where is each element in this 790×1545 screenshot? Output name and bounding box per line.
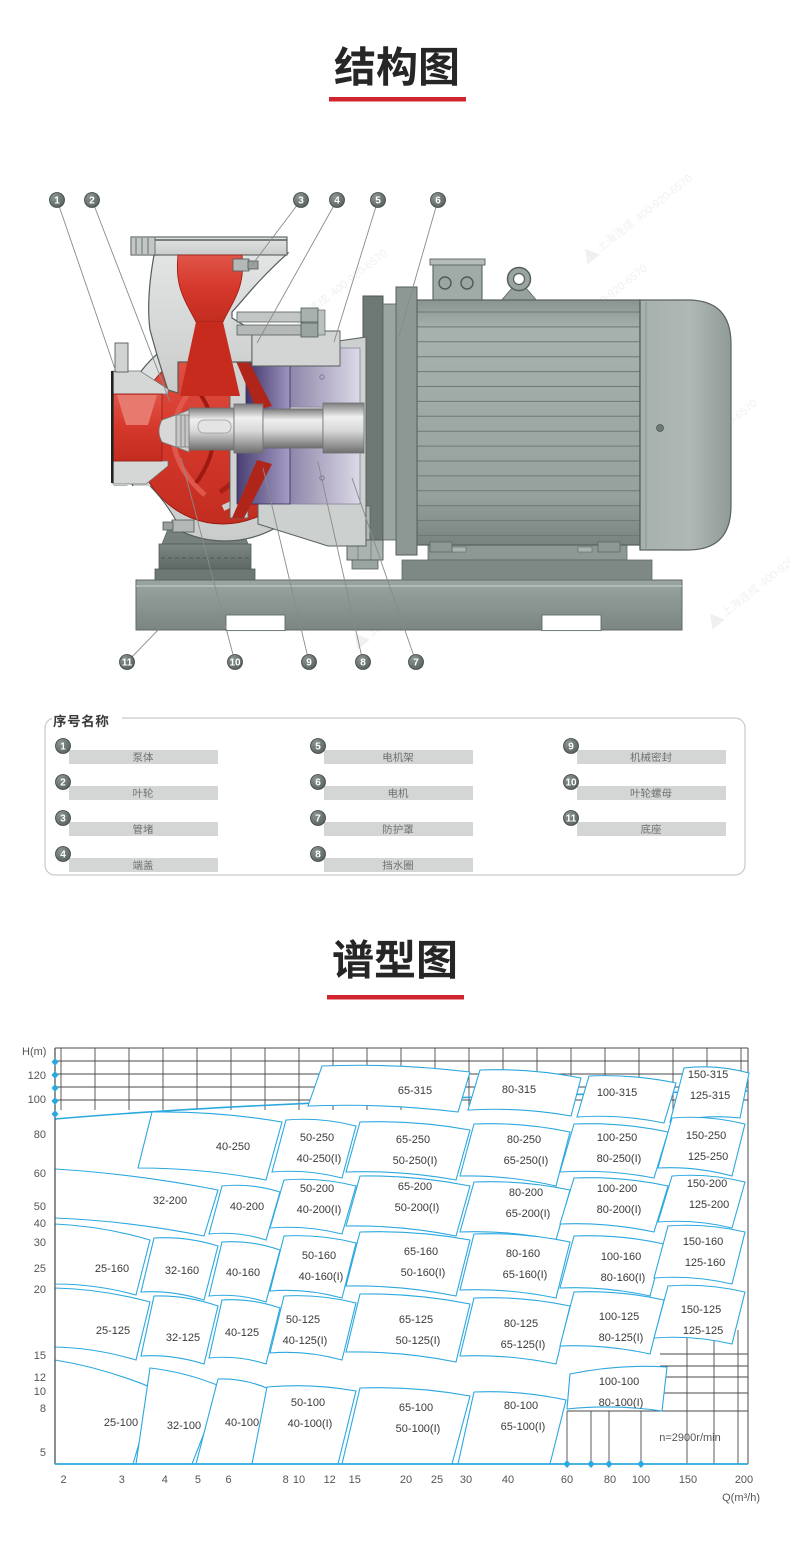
svg-text:6: 6: [315, 778, 321, 789]
svg-text:40-125(I): 40-125(I): [283, 1335, 328, 1347]
svg-text:32-100: 32-100: [167, 1420, 201, 1432]
svg-text:9: 9: [568, 742, 574, 753]
svg-text:H(m): H(m): [22, 1046, 46, 1058]
svg-text:50-200(I): 50-200(I): [395, 1202, 440, 1214]
svg-text:40-100: 40-100: [225, 1417, 259, 1429]
svg-text:40-200(I): 40-200(I): [297, 1204, 342, 1216]
svg-text:32-200: 32-200: [153, 1195, 187, 1207]
svg-text:65-100(I): 65-100(I): [501, 1421, 546, 1433]
svg-text:5: 5: [40, 1447, 46, 1459]
svg-text:50-125(I): 50-125(I): [396, 1335, 441, 1347]
svg-text:125-125: 125-125: [683, 1325, 723, 1337]
svg-text:1: 1: [54, 196, 60, 207]
svg-text:40: 40: [502, 1474, 514, 1486]
svg-text:50: 50: [34, 1201, 46, 1213]
svg-text:8: 8: [283, 1474, 289, 1486]
svg-text:20: 20: [400, 1474, 412, 1486]
svg-text:6: 6: [225, 1474, 231, 1486]
svg-text:40-250(I): 40-250(I): [297, 1153, 342, 1165]
svg-text:40-100(I): 40-100(I): [288, 1418, 333, 1430]
svg-text:125-315: 125-315: [690, 1090, 730, 1102]
svg-text:80-160(I): 80-160(I): [601, 1272, 646, 1284]
svg-text:150-125: 150-125: [681, 1304, 721, 1316]
svg-text:100: 100: [28, 1094, 46, 1106]
svg-text:80-125: 80-125: [504, 1318, 538, 1330]
svg-text:100-315: 100-315: [597, 1087, 637, 1099]
svg-text:8: 8: [360, 658, 366, 669]
svg-text:80: 80: [604, 1474, 616, 1486]
svg-text:1: 1: [60, 742, 66, 753]
svg-text:20: 20: [34, 1284, 46, 1296]
svg-text:40-160(I): 40-160(I): [299, 1271, 344, 1283]
svg-text:65-160: 65-160: [404, 1246, 438, 1258]
svg-text:5: 5: [375, 196, 381, 207]
svg-text:Q(m³/h): Q(m³/h): [722, 1492, 760, 1504]
svg-text:60: 60: [34, 1168, 46, 1180]
svg-text:6: 6: [435, 196, 441, 207]
svg-text:3: 3: [60, 814, 66, 825]
svg-text:4: 4: [162, 1474, 168, 1486]
svg-text:120: 120: [28, 1070, 46, 1082]
svg-text:150-250: 150-250: [686, 1130, 726, 1142]
svg-text:30: 30: [460, 1474, 472, 1486]
svg-text:100-100: 100-100: [599, 1376, 639, 1388]
svg-text:50-160(I): 50-160(I): [401, 1267, 446, 1279]
svg-text:7: 7: [315, 814, 321, 825]
svg-text:15: 15: [349, 1474, 361, 1486]
svg-text:80-315: 80-315: [502, 1084, 536, 1096]
svg-text:100-160: 100-160: [601, 1251, 641, 1263]
svg-text:65-200(I): 65-200(I): [506, 1208, 551, 1220]
svg-text:125-200: 125-200: [689, 1199, 729, 1211]
svg-text:40-250: 40-250: [216, 1141, 250, 1153]
svg-text:65-200: 65-200: [398, 1181, 432, 1193]
svg-text:60: 60: [561, 1474, 573, 1486]
svg-text:2: 2: [89, 196, 95, 207]
svg-text:40-125: 40-125: [225, 1327, 259, 1339]
svg-text:80-250: 80-250: [507, 1134, 541, 1146]
svg-text:25-125: 25-125: [96, 1325, 130, 1337]
svg-text:10: 10: [565, 778, 577, 789]
svg-text:80-200(I): 80-200(I): [597, 1204, 642, 1216]
svg-text:100-250: 100-250: [597, 1132, 637, 1144]
svg-text:9: 9: [306, 658, 312, 669]
svg-text:40: 40: [34, 1218, 46, 1230]
svg-text:50-125: 50-125: [286, 1314, 320, 1326]
svg-text:80-160: 80-160: [506, 1248, 540, 1260]
svg-text:8: 8: [40, 1403, 46, 1415]
svg-text:n=2900r/min: n=2900r/min: [659, 1432, 720, 1444]
svg-text:4: 4: [334, 196, 340, 207]
svg-text:65-100: 65-100: [399, 1402, 433, 1414]
svg-text:11: 11: [122, 658, 133, 669]
svg-text:11: 11: [566, 814, 577, 825]
svg-text:40-160: 40-160: [226, 1267, 260, 1279]
svg-text:80: 80: [34, 1129, 46, 1141]
svg-text:32-125: 32-125: [166, 1332, 200, 1344]
svg-text:100-200: 100-200: [597, 1183, 637, 1195]
svg-text:150-200: 150-200: [687, 1178, 727, 1190]
svg-text:12: 12: [324, 1474, 336, 1486]
svg-text:80-100(I): 80-100(I): [599, 1397, 644, 1409]
svg-text:10: 10: [229, 658, 241, 669]
svg-text:100: 100: [632, 1474, 650, 1486]
svg-text:40-200: 40-200: [230, 1201, 264, 1213]
svg-text:200: 200: [735, 1474, 753, 1486]
svg-text:15: 15: [34, 1350, 46, 1362]
svg-text:32-160: 32-160: [165, 1265, 199, 1277]
svg-text:125-250: 125-250: [688, 1151, 728, 1163]
svg-text:65-125: 65-125: [399, 1314, 433, 1326]
svg-text:25-100: 25-100: [104, 1417, 138, 1429]
svg-text:150-315: 150-315: [688, 1069, 728, 1081]
svg-text:125-160: 125-160: [685, 1257, 725, 1269]
svg-text:25: 25: [431, 1474, 443, 1486]
svg-text:50-200: 50-200: [300, 1183, 334, 1195]
svg-text:65-125(I): 65-125(I): [501, 1339, 546, 1351]
svg-text:150-160: 150-160: [683, 1236, 723, 1248]
svg-text:10: 10: [293, 1474, 305, 1486]
svg-text:100-125: 100-125: [599, 1311, 639, 1323]
svg-text:80-200: 80-200: [509, 1187, 543, 1199]
svg-text:50-100: 50-100: [291, 1397, 325, 1409]
svg-text:8: 8: [315, 850, 321, 861]
svg-text:80-100: 80-100: [504, 1400, 538, 1412]
svg-text:5: 5: [195, 1474, 201, 1486]
svg-text:25-160: 25-160: [95, 1263, 129, 1275]
svg-text:30: 30: [34, 1237, 46, 1249]
svg-text:50-100(I): 50-100(I): [396, 1423, 441, 1435]
svg-text:3: 3: [298, 196, 304, 207]
svg-text:2: 2: [60, 778, 66, 789]
svg-text:65-250(I): 65-250(I): [504, 1155, 549, 1167]
svg-text:12: 12: [34, 1372, 46, 1384]
svg-text:150: 150: [679, 1474, 697, 1486]
svg-text:65-315: 65-315: [398, 1085, 432, 1097]
svg-text:50-160: 50-160: [302, 1250, 336, 1262]
svg-text:65-250: 65-250: [396, 1134, 430, 1146]
svg-text:5: 5: [315, 742, 321, 753]
svg-text:50-250(I): 50-250(I): [393, 1155, 438, 1167]
svg-text:10: 10: [34, 1386, 46, 1398]
svg-text:7: 7: [413, 658, 419, 669]
svg-text:2: 2: [61, 1474, 67, 1486]
svg-text:3: 3: [119, 1474, 125, 1486]
svg-text:25: 25: [34, 1263, 46, 1275]
svg-text:80-125(I): 80-125(I): [599, 1332, 644, 1344]
svg-text:50-250: 50-250: [300, 1132, 334, 1144]
svg-text:4: 4: [60, 850, 66, 861]
svg-text:65-160(I): 65-160(I): [503, 1269, 548, 1281]
svg-text:80-250(I): 80-250(I): [597, 1153, 642, 1165]
